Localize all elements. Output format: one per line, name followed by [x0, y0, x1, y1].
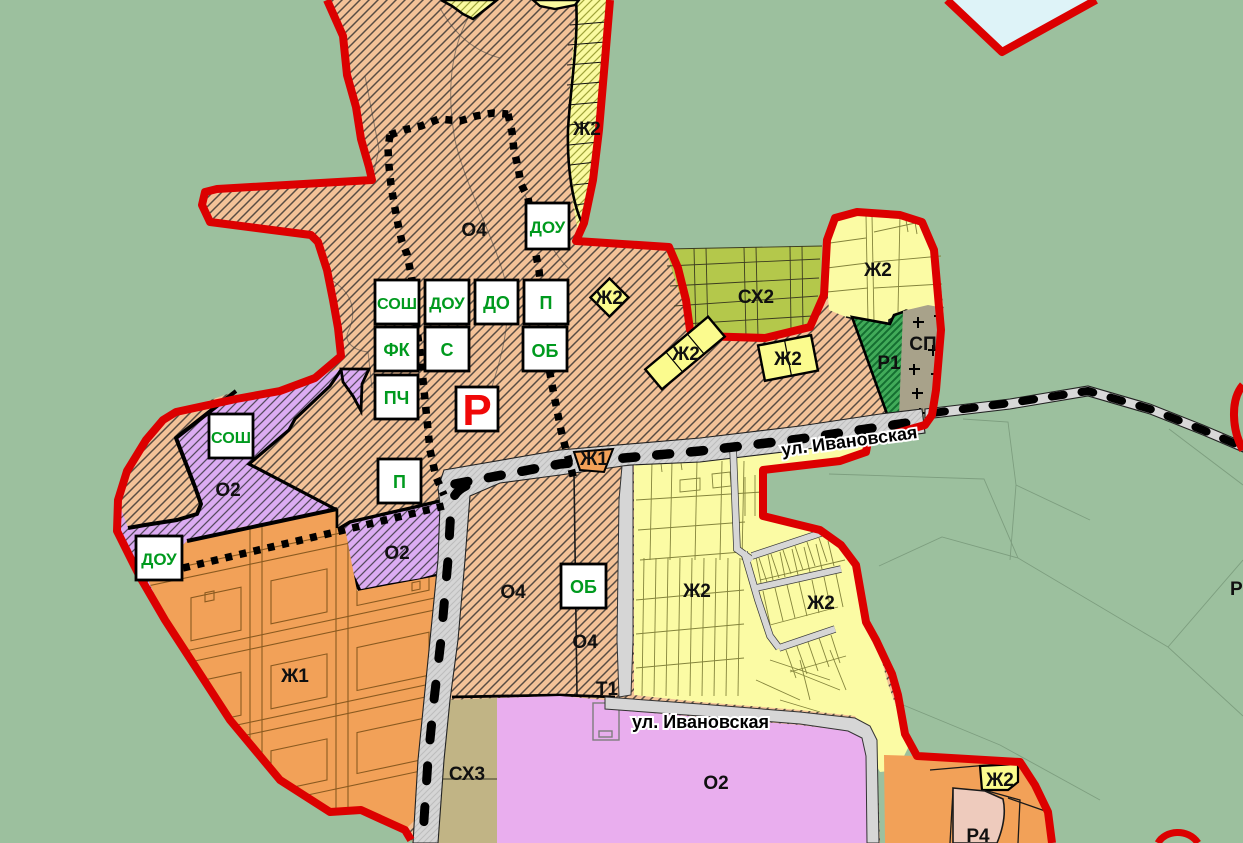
svg-text:ДОУ: ДОУ [530, 218, 566, 237]
svg-text:ОБ: ОБ [532, 341, 559, 361]
svg-text:Ж2: Ж2 [594, 288, 623, 309]
svg-text:ПЧ: ПЧ [384, 388, 410, 408]
svg-text:Ж1: Ж1 [579, 449, 608, 470]
svg-text:Р1: Р1 [877, 353, 901, 374]
svg-text:О2: О2 [703, 773, 728, 794]
svg-text:Ж2: Ж2 [863, 260, 892, 281]
svg-text:ул. Ивановская: ул. Ивановская [632, 712, 769, 732]
svg-text:О4: О4 [572, 632, 598, 653]
svg-text:СОШ: СОШ [211, 430, 251, 447]
svg-text:ДО: ДО [483, 293, 510, 313]
svg-text:Ж2: Ж2 [671, 344, 700, 365]
svg-text:Ж2: Ж2 [773, 349, 802, 370]
svg-text:Ж2: Ж2 [572, 119, 601, 140]
svg-text:Р4: Р4 [966, 826, 990, 843]
svg-text:П: П [393, 472, 406, 492]
svg-text:СП: СП [909, 334, 936, 355]
svg-text:ДОУ: ДОУ [141, 550, 177, 569]
svg-text:ФК: ФК [383, 340, 410, 360]
svg-text:ОБ: ОБ [570, 577, 597, 597]
svg-text:О2: О2 [215, 480, 240, 501]
svg-text:О2: О2 [384, 543, 409, 564]
svg-text:Р: Р [462, 386, 491, 435]
svg-text:П: П [540, 293, 553, 313]
svg-text:ДОУ: ДОУ [429, 294, 465, 313]
svg-text:Ж2: Ж2 [682, 581, 711, 602]
svg-text:СХ3: СХ3 [449, 764, 485, 785]
svg-text:Ж2: Ж2 [985, 770, 1014, 791]
svg-text:С: С [441, 340, 454, 360]
svg-text:О4: О4 [461, 220, 487, 241]
svg-text:Т1: Т1 [596, 679, 619, 700]
svg-text:Ж2: Ж2 [806, 593, 835, 614]
svg-text:О4: О4 [500, 582, 526, 603]
svg-text:Ж1: Ж1 [280, 666, 309, 687]
svg-text:СОШ: СОШ [377, 296, 417, 313]
svg-text:Р: Р [1230, 579, 1243, 600]
svg-text:СХ2: СХ2 [738, 287, 774, 308]
